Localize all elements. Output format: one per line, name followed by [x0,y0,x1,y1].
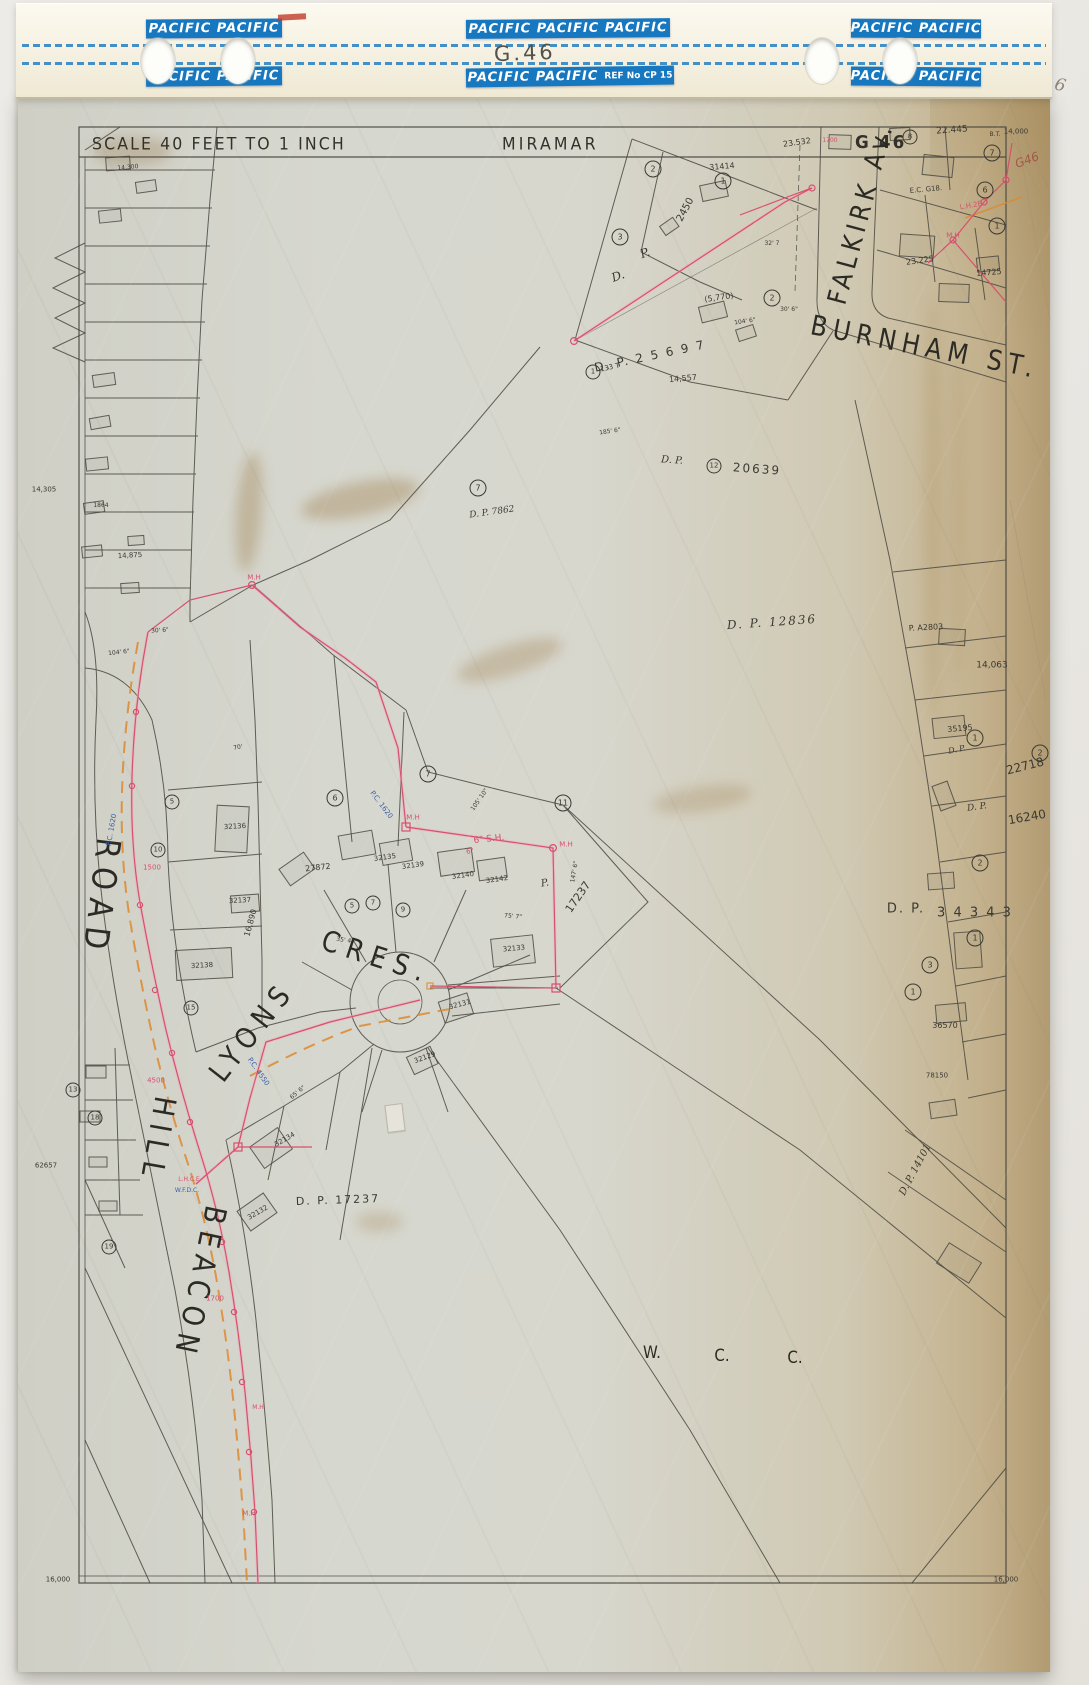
lot-circle: 3 [922,957,939,974]
num: 36570 [932,1022,957,1030]
map-scale-label: SCALE 40 FEET TO 1 INCH [92,134,346,154]
red-survey-lines [129,143,1012,1583]
num: 62657 [35,1163,57,1170]
num: 14,875 [118,552,143,560]
survey-note: M.H [946,233,960,240]
lot-circle: 19 [102,1240,117,1255]
survey-note: 6" [466,848,474,856]
buildings [80,127,1000,1283]
plan-dp20639-dp: D. P. [661,455,684,467]
lot-circle: 2 [1032,745,1049,762]
punch-hole [141,38,175,84]
wcc-c1: C. [714,1347,729,1364]
survey-note: M.H [406,815,420,822]
lot-circle: 10 [151,843,166,858]
survey-note: M.H [242,1511,256,1518]
scanned-map-photo: SCALE 40 FEET TO 1 INCH MIRAMAR G 46 FAL… [0,0,1089,1685]
pacific-tape-label: PACIFIC PACIFIC [467,69,598,86]
orange-survey-lines [122,197,1022,1583]
plan-dp17237: D. P. 17237 [296,1193,381,1207]
blue-note: W.F.D.C. [175,1188,199,1194]
pacific-tape: PACIFIC PACIFIC [146,19,282,39]
plan-17237-p: P. [540,878,550,889]
survey-note: 1700 [822,138,837,144]
lot-circle: 15 [184,1001,199,1016]
edge-creases [1008,128,1050,700]
survey-note: M.H [247,575,261,582]
pacific-tape-label: PACIFIC PACIFIC [851,21,982,37]
pacific-tape-ref: PACIFIC PACIFIC REF No CP 15 [466,66,674,88]
lot-circle: 2 [972,855,989,872]
survey-note: L.H.C.E [178,1177,199,1183]
lot-circle: 8 [903,130,918,145]
num: B.T. [990,132,1001,138]
lot-circle: 1 [715,173,732,190]
num: 32137 [229,897,252,905]
lot-circle: 1 [586,365,601,380]
num: 14,305 [32,487,57,494]
lot-circle: 1 [967,730,984,747]
survey-note: 1700 [206,1296,224,1303]
num: 1864 [93,503,108,509]
num: 32138 [191,962,214,970]
survey-note: 1500 [143,865,161,872]
num: 78150 [926,1073,948,1080]
pacific-tape: PACIFIC PACIFIC [851,19,981,39]
pacific-tape-label: PACIFIC PACIFIC [851,69,982,85]
lot-circle: 7 [420,766,437,783]
lot-circle: 5 [165,795,180,810]
map-area-label: MIRAMAR [502,134,599,154]
wcc-c2: C. [787,1349,802,1366]
survey-note: 4500 [147,1078,165,1085]
pacific-tape: PACIFIC PACIFIC PACIFIC [466,18,670,39]
dim: 30' 6" [151,627,169,634]
lot-circle: 6 [977,182,994,199]
pacific-tape-label: PACIFIC PACIFIC [149,21,280,37]
punch-hole [883,38,917,84]
red-ink-mark [278,13,306,20]
plan-dp34343-dp: D. P. [887,903,925,916]
survey-note: M.H [252,1405,264,1411]
lot-circle: 7 [470,480,487,497]
lot-circle: 7 [984,145,1001,162]
pacific-tape-label: PACIFIC PACIFIC PACIFIC [468,20,667,37]
map-linework [0,0,1089,1685]
num: 14,063 [976,662,1008,671]
num: 16,000 [994,1577,1019,1584]
pacific-tape-ref-label: REF No CP 15 [604,70,672,81]
num: 32136 [224,823,247,831]
dim: 32' 7 [764,241,779,247]
sheet-code-handwritten: G.46 [494,40,556,66]
wcc-w: W. [643,1344,661,1361]
lot-circle: 2 [764,290,781,307]
lot-circle: 13 [66,1083,81,1098]
lot-circle: 6 [327,790,344,807]
lot-circle: 18 [88,1111,103,1126]
lot-circle: 3 [612,229,629,246]
num: 16,000 [46,1577,71,1584]
lot-circle: 1 [989,218,1006,235]
lot-circle: 9 [396,903,411,918]
lot-circle: 1 [905,984,922,1001]
punch-hole [805,38,839,84]
lot-circle: 2 [645,161,662,178]
dim: 30' 6" [780,307,798,313]
plan-dp34343: 3 4 3 4 3 [937,907,1013,920]
plan-dp20639: 20639 [733,461,782,476]
lot-circle: 1 [967,930,984,947]
num: 14,000 [1004,129,1029,136]
pacific-tape: PACIFIC PACIFIC [851,67,981,87]
punch-hole [221,38,255,84]
lot-circle: 11 [555,795,572,812]
survey-note: M.H [559,842,573,849]
lot-circle: 5 [345,899,360,914]
lot-circle: 7 [366,896,381,911]
lot-circle: 12 [707,459,722,474]
